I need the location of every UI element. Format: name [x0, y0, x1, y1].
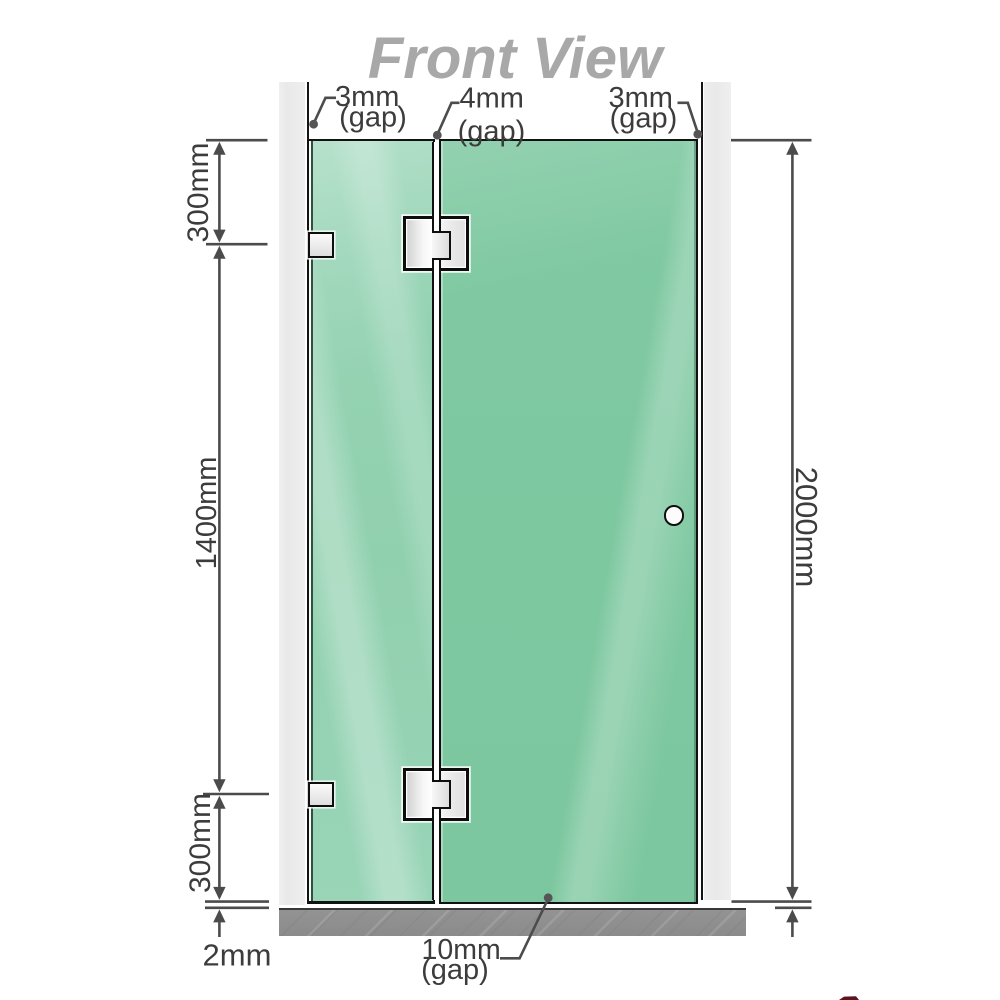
svg-text:300mm: 300mm	[182, 142, 215, 242]
svg-text:(gap): (gap)	[339, 102, 407, 134]
svg-text:(gap): (gap)	[421, 954, 489, 986]
svg-text:300mm: 300mm	[184, 793, 217, 893]
svg-text:(gap): (gap)	[610, 103, 678, 135]
svg-text:(gap): (gap)	[458, 116, 526, 148]
svg-text:2000mm: 2000mm	[789, 467, 824, 588]
svg-text:2mm: 2mm	[203, 938, 272, 973]
svg-text:1400mm: 1400mm	[191, 457, 223, 570]
svg-text:4mm: 4mm	[460, 83, 524, 115]
